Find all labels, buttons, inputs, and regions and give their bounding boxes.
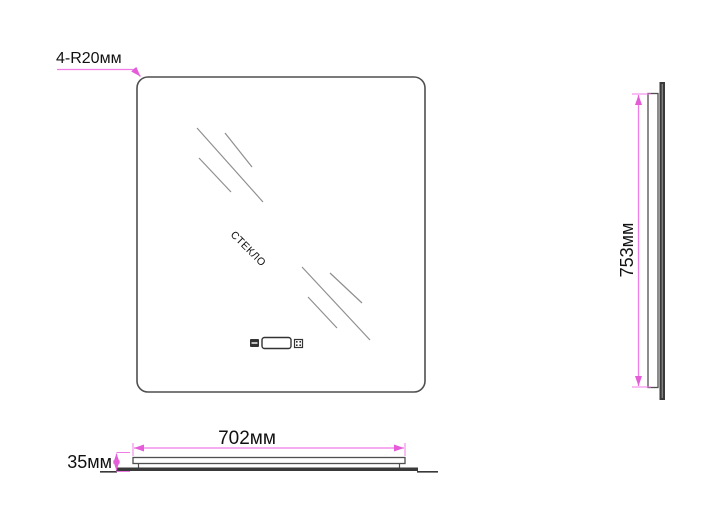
- depth-dimension-label: 35мм: [67, 452, 112, 472]
- bottom-glass-edge: [116, 468, 418, 472]
- bottom-backing-profile: [133, 458, 405, 464]
- corner-radius-label: 4-R20мм: [56, 50, 122, 67]
- corner-radius-leader-line: [57, 70, 141, 77]
- front-view: СТЕКЛО: [137, 77, 425, 392]
- sensor-panel: [250, 338, 303, 349]
- bottom-view: [100, 458, 438, 472]
- drawing-canvas: СТЕКЛО 4-R20мм 753мм: [0, 0, 706, 510]
- width-dimension-label: 702мм: [218, 428, 276, 449]
- height-dimension: 753мм: [617, 94, 651, 387]
- side-view: [648, 82, 665, 400]
- touch-switch-icon: [295, 340, 303, 348]
- corner-radius-callout: 4-R20мм: [56, 50, 141, 77]
- display-window: [262, 338, 291, 349]
- height-dimension-label: 753мм: [617, 223, 637, 278]
- side-backing-profile: [648, 94, 658, 388]
- width-dimension: 702мм: [133, 428, 405, 456]
